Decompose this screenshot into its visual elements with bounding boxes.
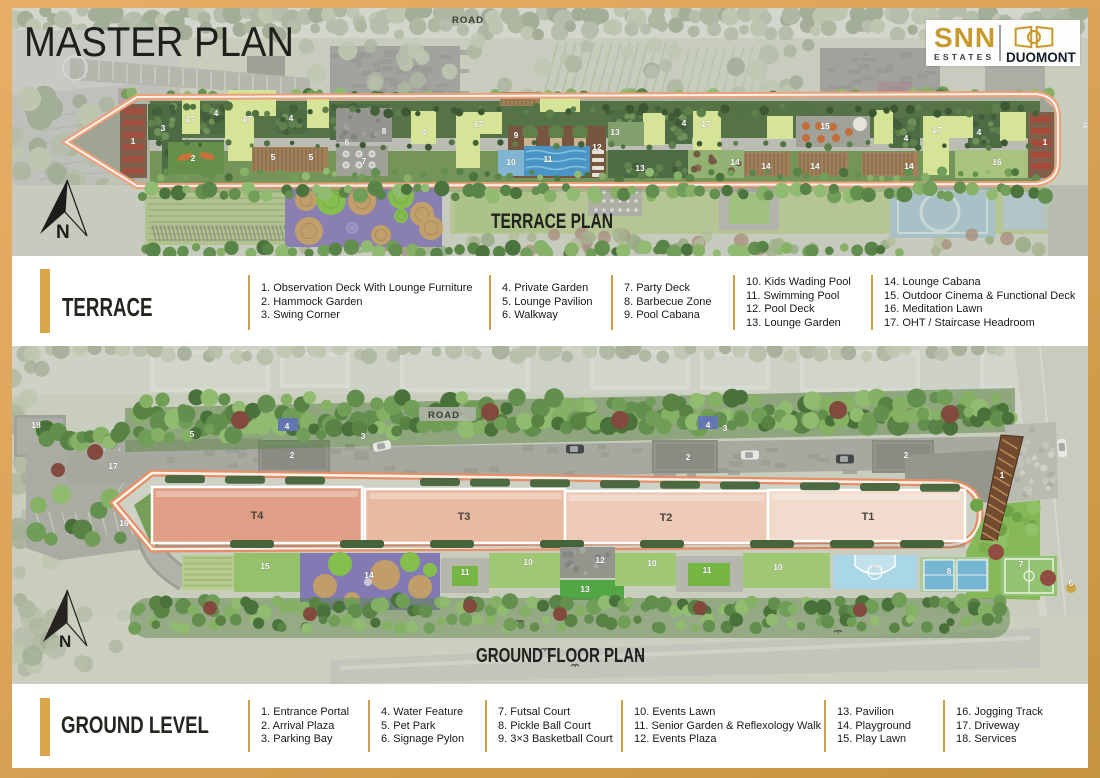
svg-text:9: 9 — [514, 130, 519, 140]
svg-text:10: 10 — [506, 157, 516, 167]
svg-text:12: 12 — [592, 142, 602, 152]
svg-text:14: 14 — [730, 157, 740, 167]
svg-text:4: 4 — [706, 420, 711, 430]
svg-text:4: 4 — [977, 127, 982, 137]
svg-text:2: 2 — [904, 450, 909, 460]
svg-text:14: 14 — [364, 570, 374, 580]
svg-text:16: 16 — [119, 518, 129, 528]
svg-text:17: 17 — [242, 114, 252, 124]
svg-text:9: 9 — [873, 562, 878, 572]
svg-text:10: 10 — [773, 562, 783, 572]
svg-text:5: 5 — [309, 152, 314, 162]
svg-text:4: 4 — [1083, 120, 1088, 130]
svg-text:MASTER PLAN: MASTER PLAN — [24, 18, 294, 65]
svg-text:4: 4 — [682, 118, 687, 128]
svg-text:4: 4 — [289, 113, 294, 123]
svg-text:2: 2 — [191, 153, 196, 163]
svg-text:14: 14 — [904, 161, 914, 171]
svg-text:GROUND FLOOR PLAN: GROUND FLOOR PLAN — [476, 645, 645, 667]
svg-text:13: 13 — [580, 584, 590, 594]
svg-text:17: 17 — [932, 125, 942, 135]
svg-text:11: 11 — [544, 154, 553, 164]
svg-text:17: 17 — [108, 461, 118, 471]
svg-text:3: 3 — [723, 423, 728, 433]
svg-text:7: 7 — [362, 156, 367, 166]
svg-text:16: 16 — [992, 157, 1002, 167]
svg-text:4: 4 — [422, 127, 427, 137]
svg-text:1: 1 — [1000, 470, 1005, 480]
svg-text:13: 13 — [610, 127, 620, 137]
svg-text:17: 17 — [473, 119, 483, 129]
svg-text:6: 6 — [345, 137, 350, 147]
svg-text:1: 1 — [1043, 137, 1048, 147]
svg-text:ROAD: ROAD — [452, 15, 484, 26]
svg-text:14: 14 — [810, 161, 820, 171]
svg-text:1: 1 — [131, 136, 136, 146]
svg-text:15: 15 — [820, 121, 830, 131]
svg-text:N: N — [59, 632, 71, 651]
svg-text:12: 12 — [595, 555, 605, 565]
svg-text:ROAD: ROAD — [428, 410, 460, 421]
svg-text:2: 2 — [686, 452, 691, 462]
svg-text:4: 4 — [904, 133, 909, 143]
svg-text:N: N — [56, 222, 70, 243]
svg-text:18: 18 — [31, 420, 41, 430]
svg-text:6: 6 — [1069, 578, 1074, 588]
svg-text:3: 3 — [161, 123, 166, 133]
svg-text:TERRACE PLAN: TERRACE PLAN — [491, 210, 613, 233]
svg-text:10: 10 — [647, 558, 657, 568]
svg-text:11: 11 — [461, 567, 470, 577]
svg-text:14: 14 — [761, 161, 771, 171]
svg-text:4: 4 — [285, 421, 290, 431]
svg-text:3: 3 — [361, 431, 366, 441]
svg-text:5: 5 — [190, 429, 195, 439]
svg-text:15: 15 — [260, 561, 270, 571]
svg-text:5: 5 — [271, 152, 276, 162]
svg-text:10: 10 — [523, 557, 533, 567]
svg-text:13: 13 — [635, 163, 645, 173]
svg-text:7: 7 — [1019, 559, 1024, 569]
svg-text:17: 17 — [185, 114, 195, 124]
svg-text:8: 8 — [382, 126, 387, 136]
svg-text:17: 17 — [701, 119, 711, 129]
svg-text:4: 4 — [214, 108, 219, 118]
svg-text:11: 11 — [703, 565, 712, 575]
svg-text:8: 8 — [947, 566, 952, 576]
svg-text:2: 2 — [290, 450, 295, 460]
